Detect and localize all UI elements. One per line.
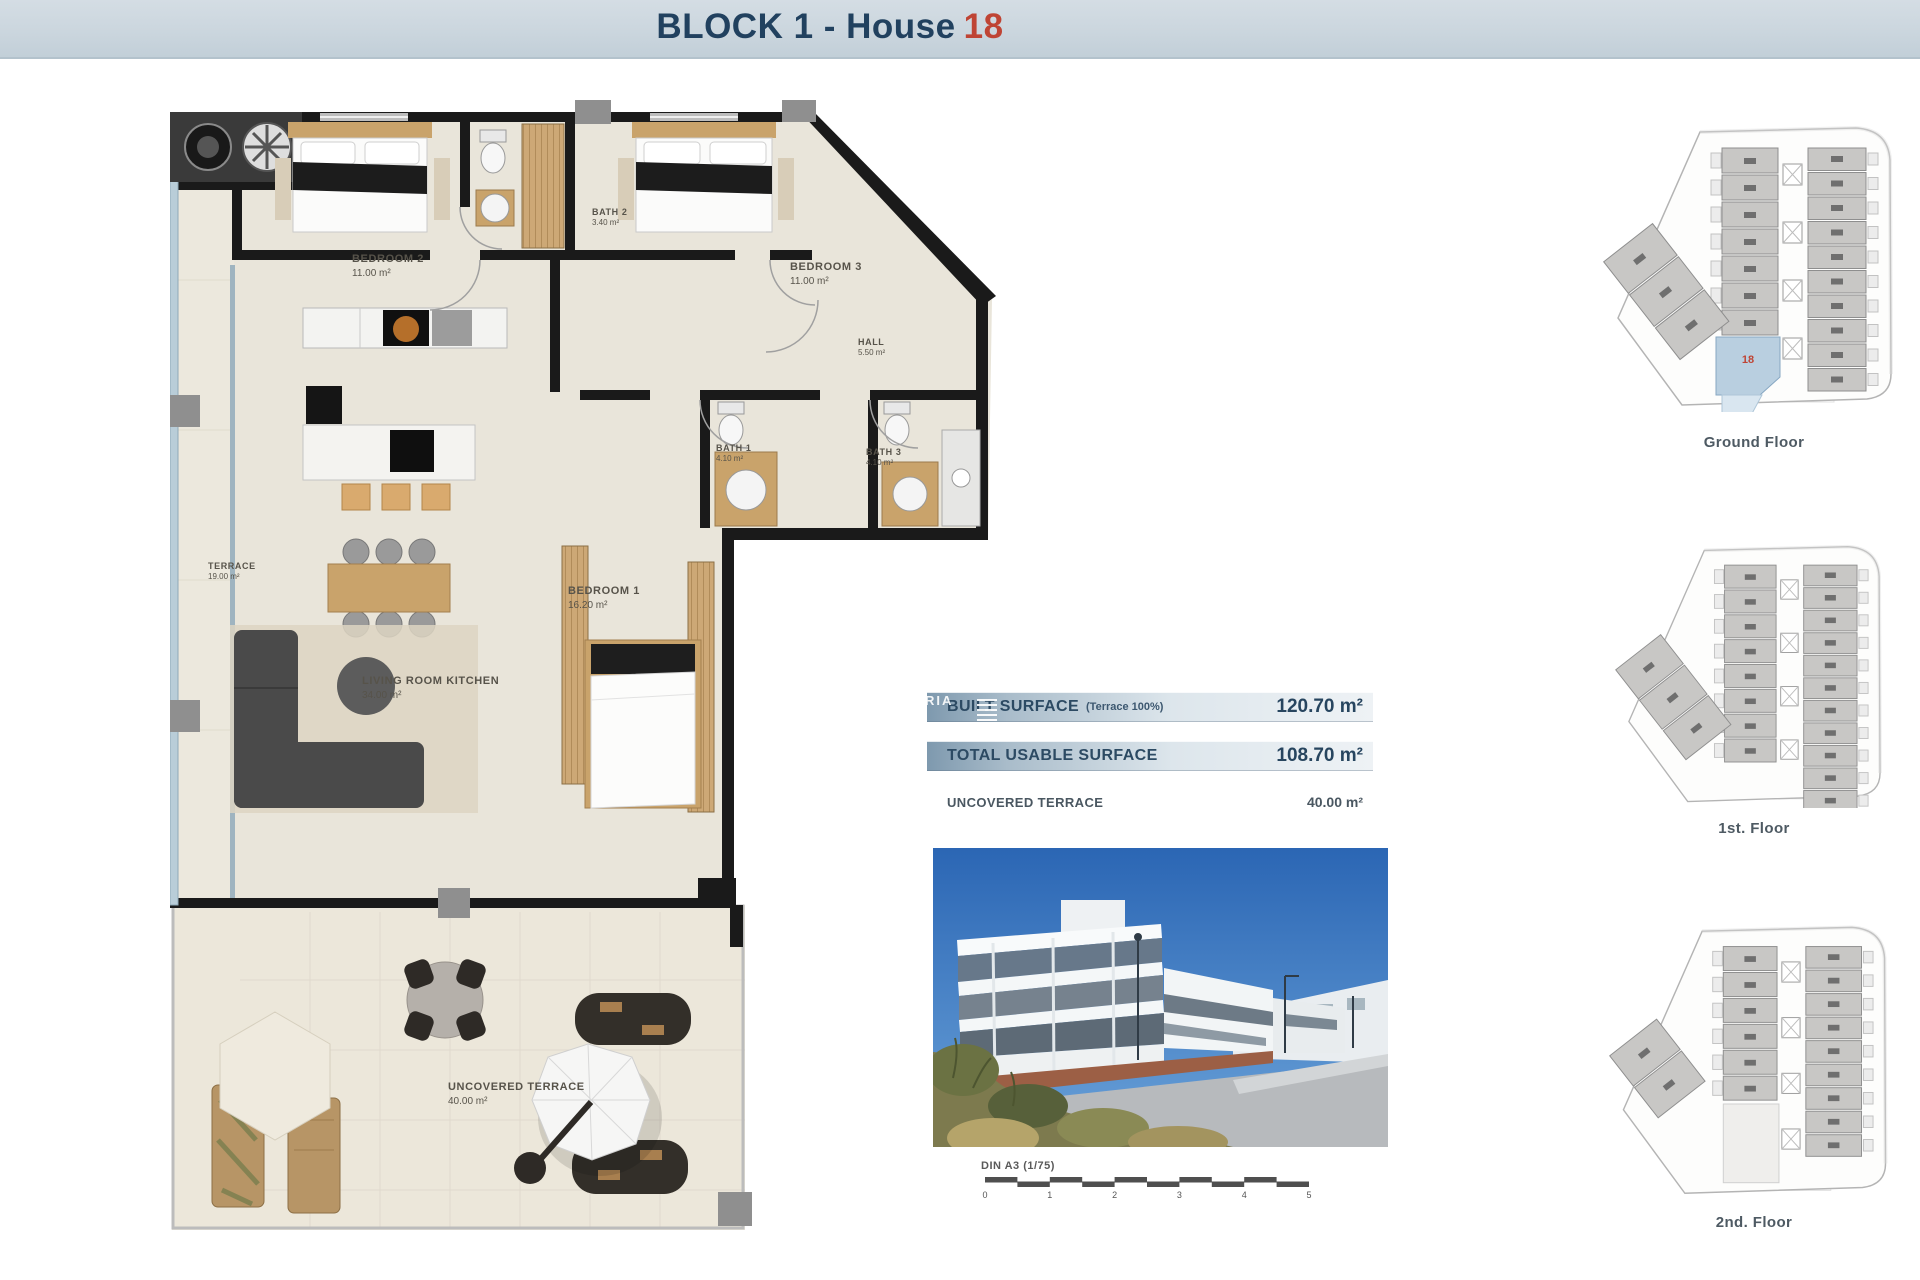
room-label-bedroom3: BEDROOM 3 11.00 m² [790, 260, 862, 288]
scale-bar-label: DIN A3 (1/75) [981, 1160, 1321, 1172]
room-label-bath2: BATH 2 3.40 m² [592, 206, 627, 229]
surface-table: RIA BUILT SURFACE (Terrace 100%) 120.70 … [927, 692, 1373, 814]
watermark-lines-icon [977, 696, 997, 720]
page-title: BLOCK 1 - House18 [0, 7, 1660, 47]
sofa [230, 625, 478, 813]
scale-bar: DIN A3 (1/75) 012345 [981, 1160, 1321, 1200]
svg-text:1: 1 [1047, 1190, 1052, 1200]
first-floor-label: 1st. Floor [1598, 820, 1910, 837]
room-label-bedroom1: BEDROOM 1 16.20 m² [568, 584, 640, 612]
scale-bar-ruler: 012345 [981, 1174, 1317, 1200]
title-text: BLOCK 1 - House [656, 7, 955, 46]
site-plan-first-floor [1598, 532, 1910, 808]
second-floor-label: 2nd. Floor [1598, 1214, 1910, 1231]
highlighted-unit-number: 18 [1742, 354, 1754, 366]
watermark-text: RIA [925, 693, 953, 708]
room-label-uncovered-terrace: UNCOVERED TERRACE 40.00 m² [448, 1080, 585, 1108]
svg-text:2: 2 [1112, 1190, 1117, 1200]
sun-lounger [575, 993, 691, 1045]
house-number: 18 [964, 7, 1004, 46]
svg-text:5: 5 [1306, 1190, 1311, 1200]
site-plan-second-floor [1598, 912, 1910, 1200]
svg-text:3: 3 [1177, 1190, 1182, 1200]
page-header: BLOCK 1 - House18 [0, 0, 1920, 59]
usable-surface-row: TOTAL USABLE SURFACE 108.70 m² [927, 741, 1373, 771]
room-label-hall: HALL 5.50 m² [858, 336, 885, 359]
dining-table [328, 539, 450, 637]
building-photo [933, 848, 1388, 1147]
svg-text:4: 4 [1242, 1190, 1247, 1200]
bed-bedroom2 [275, 122, 450, 232]
room-label-living: LIVING ROOM KITCHEN 34.00 m² [362, 674, 499, 702]
svg-text:0: 0 [982, 1190, 987, 1200]
uncovered-terrace-row: UNCOVERED TERRACE 40.00 m² [927, 790, 1373, 814]
site-plan-ground-floor: 18 [1598, 112, 1910, 412]
built-surface-row: RIA BUILT SURFACE (Terrace 100%) 120.70 … [927, 692, 1373, 722]
room-label-terrace: TERRACE 19.00 m² [208, 560, 256, 583]
room-label-bath1: BATH 1 4.10 m² [716, 442, 751, 465]
bed-bedroom3 [618, 122, 794, 232]
room-label-bedroom2: BEDROOM 2 11.00 m² [352, 252, 424, 280]
ground-floor-label: Ground Floor [1598, 434, 1910, 451]
room-label-bath3: BATH 3 4.10 m² [866, 446, 901, 469]
